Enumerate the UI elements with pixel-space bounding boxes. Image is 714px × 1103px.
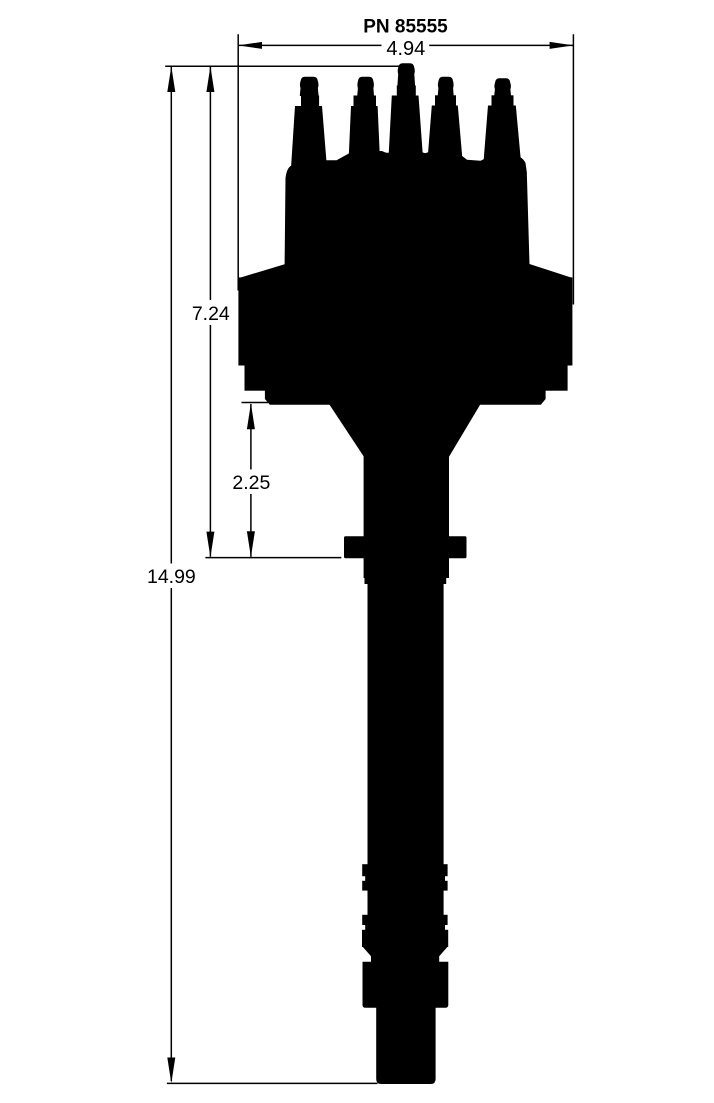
svg-text:14.99: 14.99 xyxy=(147,566,196,588)
svg-text:7.24: 7.24 xyxy=(192,303,230,325)
svg-text:4.94: 4.94 xyxy=(386,38,425,60)
svg-text:2.25: 2.25 xyxy=(232,472,270,494)
svg-text:PN 85555: PN 85555 xyxy=(363,17,448,38)
